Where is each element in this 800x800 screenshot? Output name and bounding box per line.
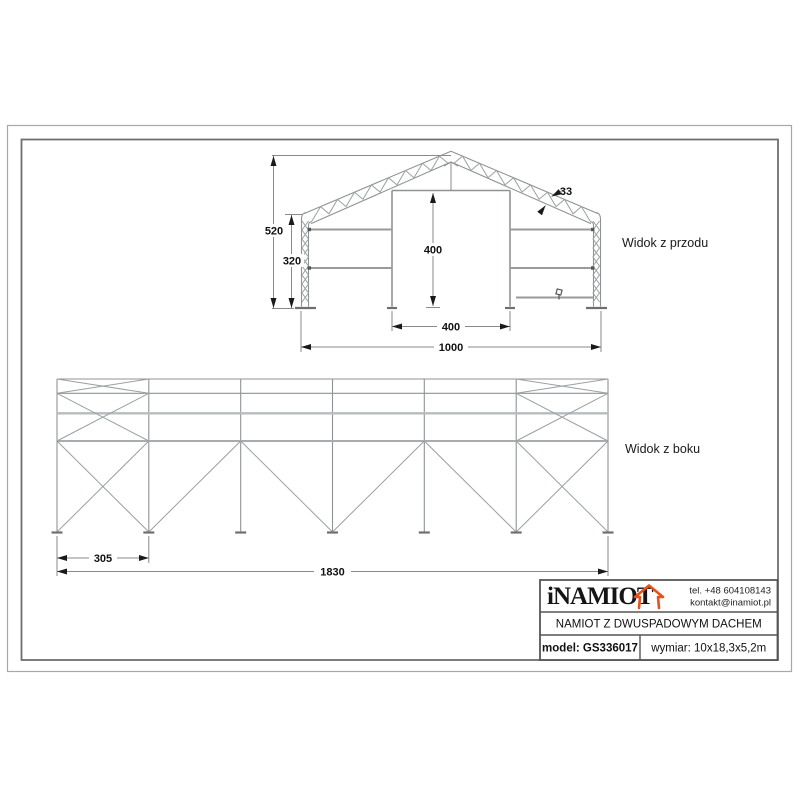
side-view: 305 1830 Widok z boku — [52, 379, 701, 579]
roof-truss — [304, 151, 598, 223]
dim-total-length: 1830 — [320, 567, 344, 579]
phone-text: tel. +48 604108143 — [689, 586, 771, 597]
dim-door-width: 400 — [442, 322, 460, 334]
dim-door-height: 400 — [424, 245, 442, 257]
rail-connectors — [308, 228, 595, 270]
dim-wall-height: 320 — [283, 256, 301, 268]
drawing-canvas: 520 320 400 400 1000 33 Widok z przodu — [0, 0, 800, 800]
wall-rails — [309, 230, 593, 298]
side-dim-labels: 305 1830 — [89, 552, 351, 579]
size-text: wymiar: 10x18,3x5,2m — [650, 643, 766, 655]
dim-total-width: 1000 — [439, 342, 463, 354]
wall-columns — [302, 213, 601, 307]
email-text: kontakt@inamiot.pl — [690, 598, 771, 609]
door-frame — [392, 191, 510, 307]
product-title: NAMIOT Z DWUSPADOWYM DACHEM — [556, 619, 762, 631]
side-view-label: Widok z boku — [625, 442, 700, 456]
drawing-sheet: 520 320 400 400 1000 33 Widok z przodu — [0, 0, 800, 800]
front-view: 520 320 400 400 1000 33 Widok z przodu — [262, 151, 708, 354]
dim-end-bay: 305 — [94, 553, 112, 565]
dim-total-height: 520 — [265, 226, 283, 238]
side-columns — [57, 379, 608, 532]
dim-truss-depth: 33 — [560, 186, 572, 198]
title-block: iNAMIOT tel. +48 604108143 kontakt@inami… — [540, 580, 778, 660]
front-view-label: Widok z przodu — [622, 236, 708, 250]
model-text: model: GS336017 — [542, 643, 638, 655]
wall-lattice — [302, 221, 600, 302]
